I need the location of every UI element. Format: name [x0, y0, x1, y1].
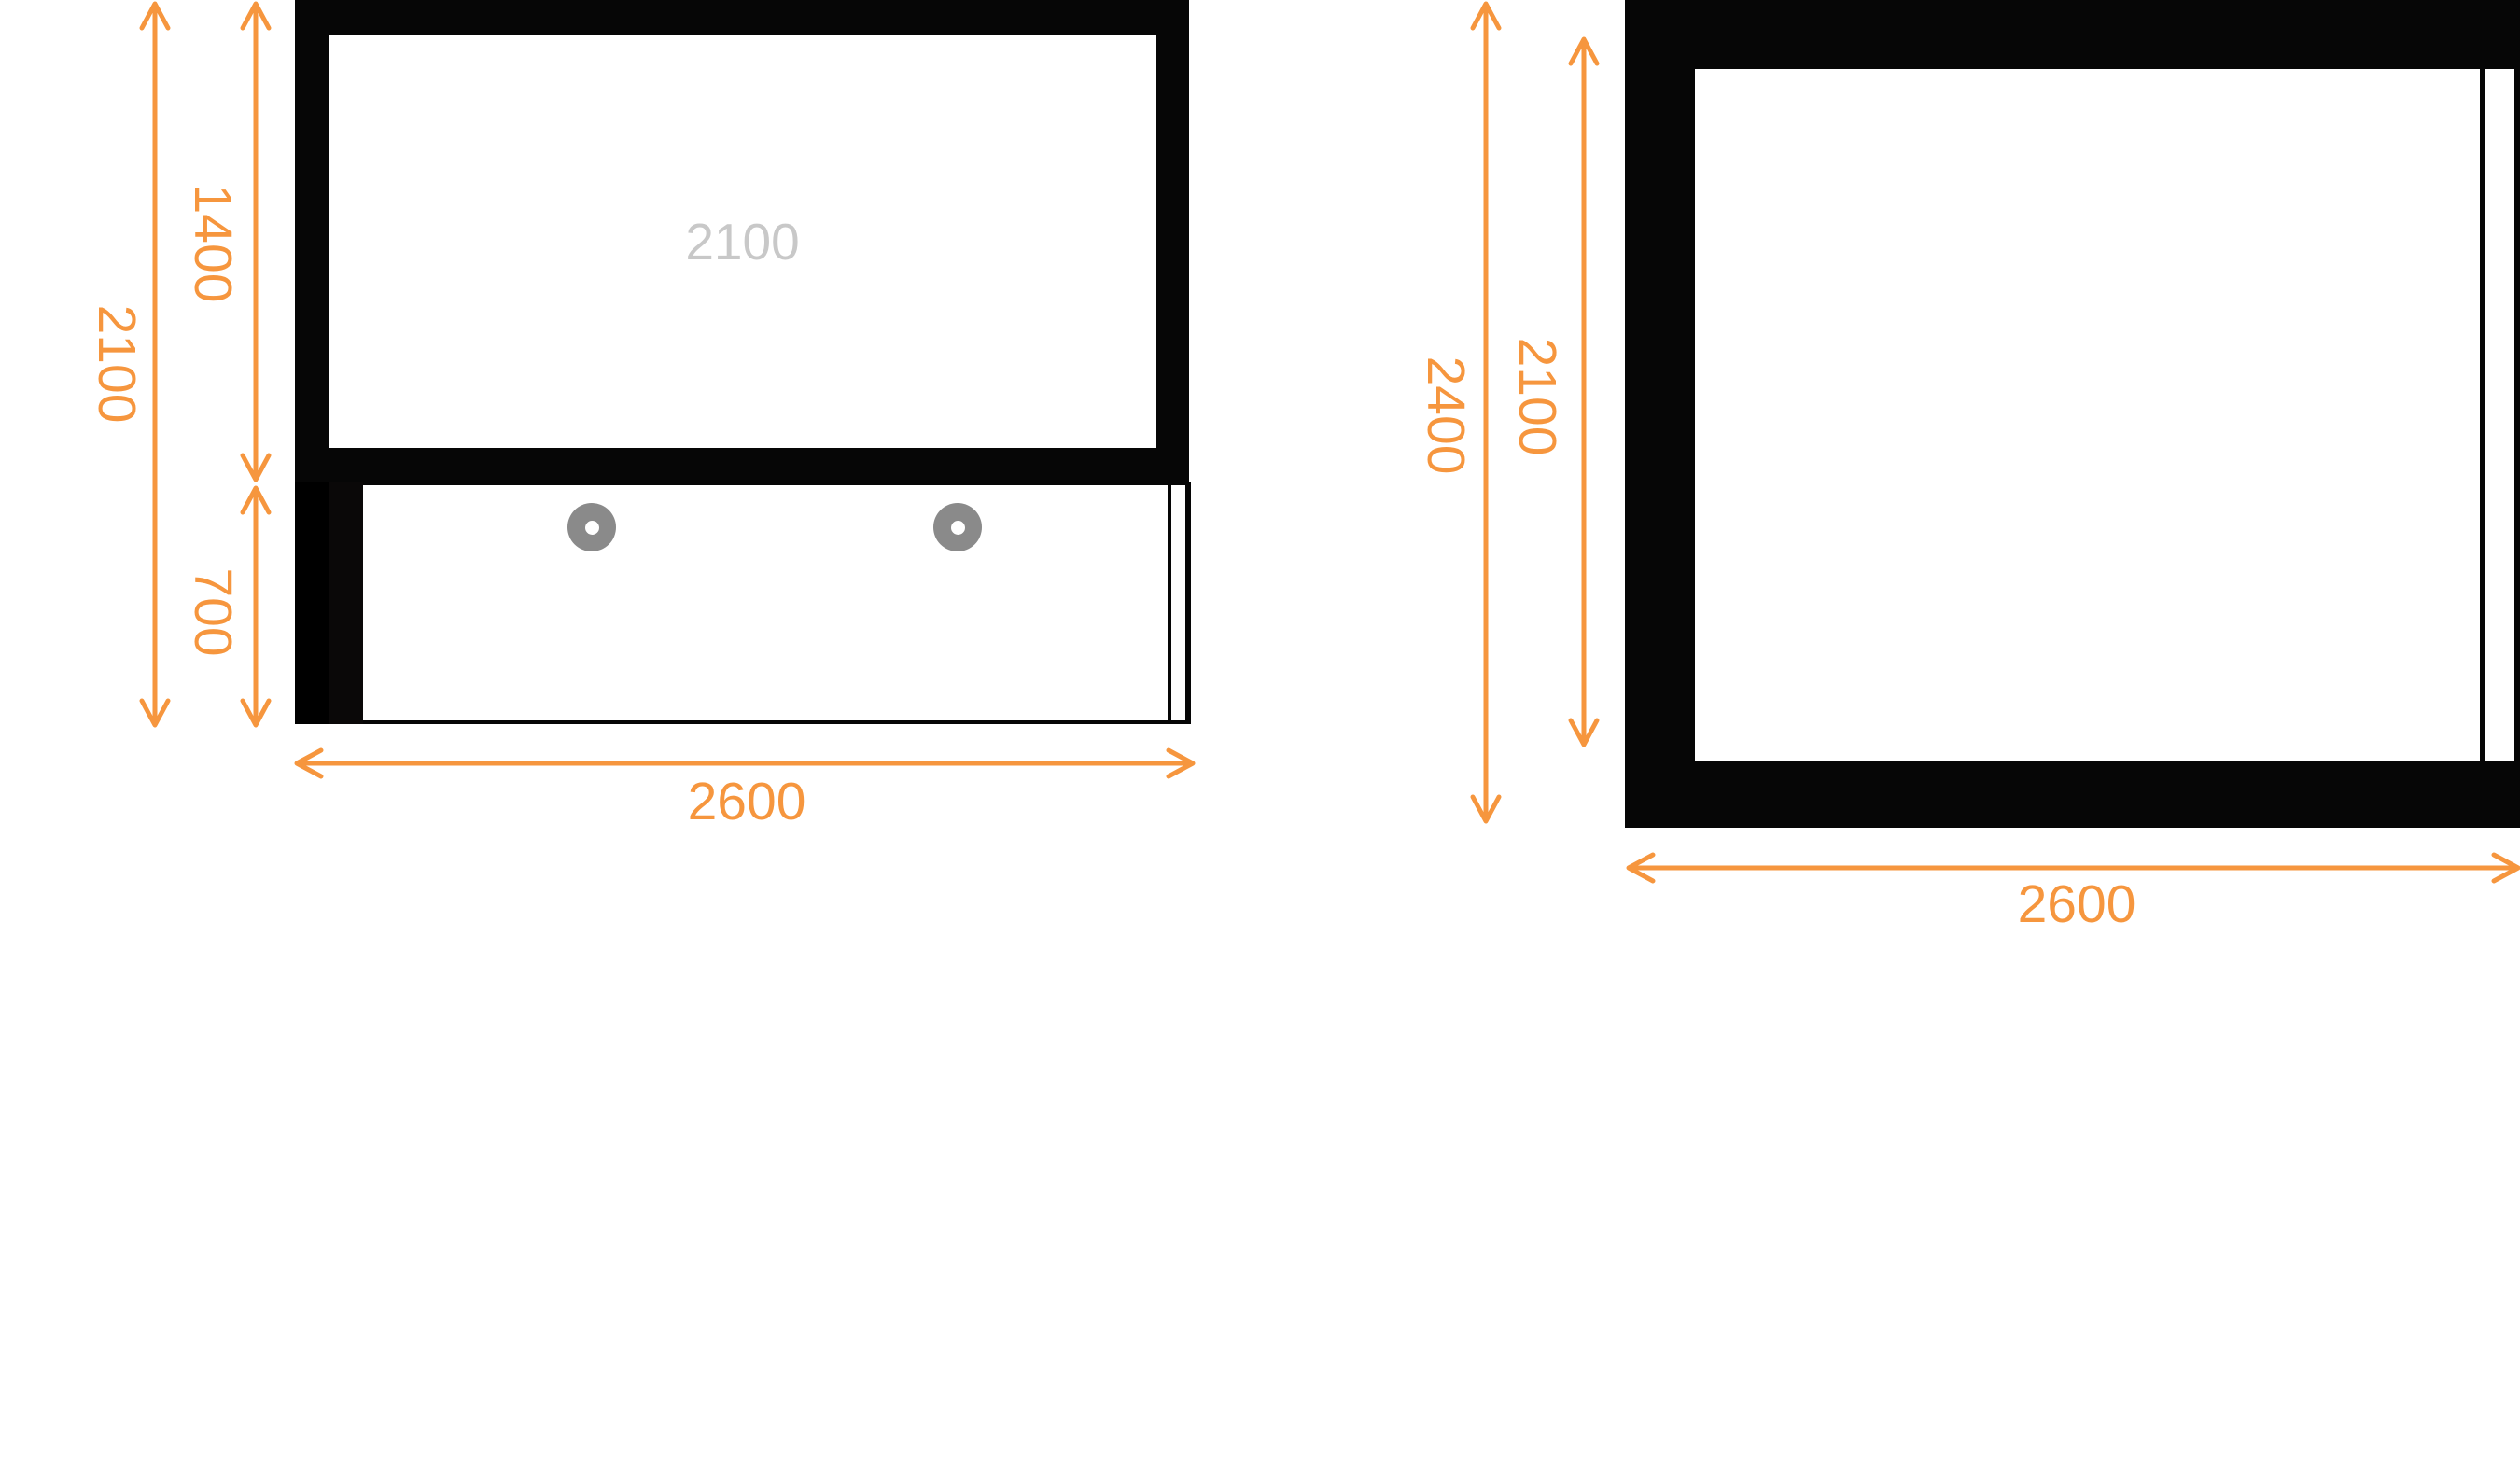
- drawer-front-panel[interactable]: [329, 482, 1191, 724]
- dim-label-front-total-height: 2100: [86, 305, 147, 424]
- handle-hole-icon: [951, 521, 965, 535]
- side-edge-panel: [2485, 69, 2514, 761]
- dim-label-side-inner-height: 2100: [1506, 338, 1568, 456]
- drawer-left-side-panel: [329, 482, 363, 724]
- front-left-side-panel[interactable]: [295, 482, 329, 724]
- front-door-panel[interactable]: 2100: [329, 35, 1156, 448]
- door-panel-height-placeholder: 2100: [685, 212, 799, 272]
- dim-arrow-front-lower-height: [243, 488, 269, 725]
- dim-arrow-side-outer-height: [1473, 4, 1499, 821]
- side-interior-panel[interactable]: [1695, 69, 2480, 761]
- dim-label-front-upper-height: 1400: [182, 185, 244, 303]
- drawer-right-divider-line: [1168, 484, 1171, 722]
- dim-arrow-front-upper-height: [243, 4, 269, 480]
- handle-hole-icon: [585, 521, 599, 535]
- dim-label-side-outer-height: 2400: [1415, 356, 1477, 475]
- drawer-handle-left-icon: [567, 503, 616, 551]
- dim-label-front-width: 2600: [688, 771, 806, 832]
- design-canvas: 2100: [0, 0, 2520, 1466]
- drawer-handle-right-icon: [933, 503, 982, 551]
- dim-label-side-width: 2600: [2018, 873, 2136, 935]
- dim-arrow-side-inner-height: [1571, 39, 1597, 745]
- dim-label-front-lower-height: 700: [182, 567, 244, 656]
